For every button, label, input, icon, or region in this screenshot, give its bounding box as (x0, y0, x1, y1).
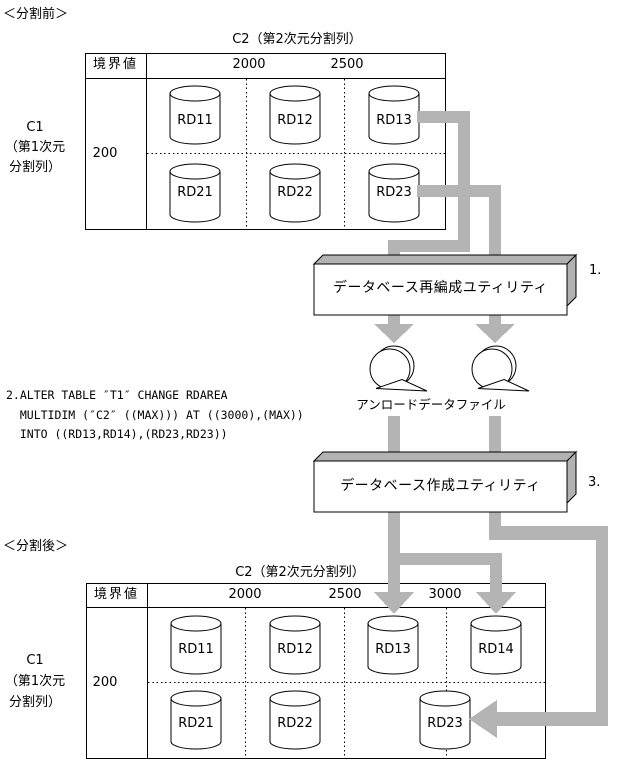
after-col-boundary-2500: 2500 (295, 587, 395, 602)
after-boundary-header: 境界値 (86, 587, 147, 602)
after-col-boundary-3000: 3000 (395, 587, 495, 602)
cylinder-label-rd11: RD11 (170, 113, 220, 128)
before-boundary-header: 境界値 (85, 57, 146, 72)
cylinder-label-rd13: RD13 (369, 113, 419, 128)
cylinder-label-rd22: RD22 (270, 185, 320, 200)
before-row-boundary: 200 (80, 146, 130, 161)
after-section-label: ＜分割後＞ (3, 539, 68, 554)
alter-table-sql: 2.ALTER TABLE ″T1″ CHANGE RDAREA MULTIDI… (6, 386, 304, 445)
before-col-boundary-2500: 2500 (297, 57, 397, 72)
before-table-title: C2（第2次元分割列） (187, 32, 407, 47)
cylinder-label-rd11-after: RD11 (171, 642, 221, 657)
before-col-boundary-2000: 2000 (199, 57, 299, 72)
cylinder-label-rd12-after: RD12 (270, 642, 320, 657)
create-utility-label: データベース作成ユティリティ (314, 479, 567, 494)
cylinder-label-rd21: RD21 (170, 185, 220, 200)
step1-number: 1. (589, 263, 601, 278)
cylinder-label-rd14-after: RD14 (471, 642, 521, 657)
unload-files-label: アンロードデータファイル (331, 397, 531, 412)
cylinder-label-rd22-after: RD22 (270, 716, 320, 731)
before-row-axis-label: C1 （第1次元 分割列） (0, 118, 70, 178)
cylinder-label-rd23: RD23 (369, 185, 419, 200)
partition-diagram: ＜分割前＞ C2（第2次元分割列） 境界値 2000 2500 C1 （第1次元… (0, 0, 620, 763)
before-section-label: ＜分割前＞ (3, 7, 68, 22)
reorg-utility-label: データベース再編成ユティリティ (314, 281, 567, 296)
tape-file-icon-left (370, 346, 427, 391)
step3-number: 3. (588, 475, 600, 490)
after-table-title: C2（第2次元分割列） (190, 565, 410, 580)
after-col-boundary-2000: 2000 (195, 587, 295, 602)
after-row-axis-label: C1 （第1次元 分割列） (0, 650, 70, 713)
cylinder-label-rd13-after: RD13 (368, 642, 418, 657)
tape-file-icon-right (472, 346, 529, 391)
after-row-boundary: 200 (80, 675, 130, 690)
cylinder-label-rd21-after: RD21 (171, 716, 221, 731)
cylinder-label-rd23-after: RD23 (420, 716, 470, 731)
cylinder-label-rd12: RD12 (270, 113, 320, 128)
